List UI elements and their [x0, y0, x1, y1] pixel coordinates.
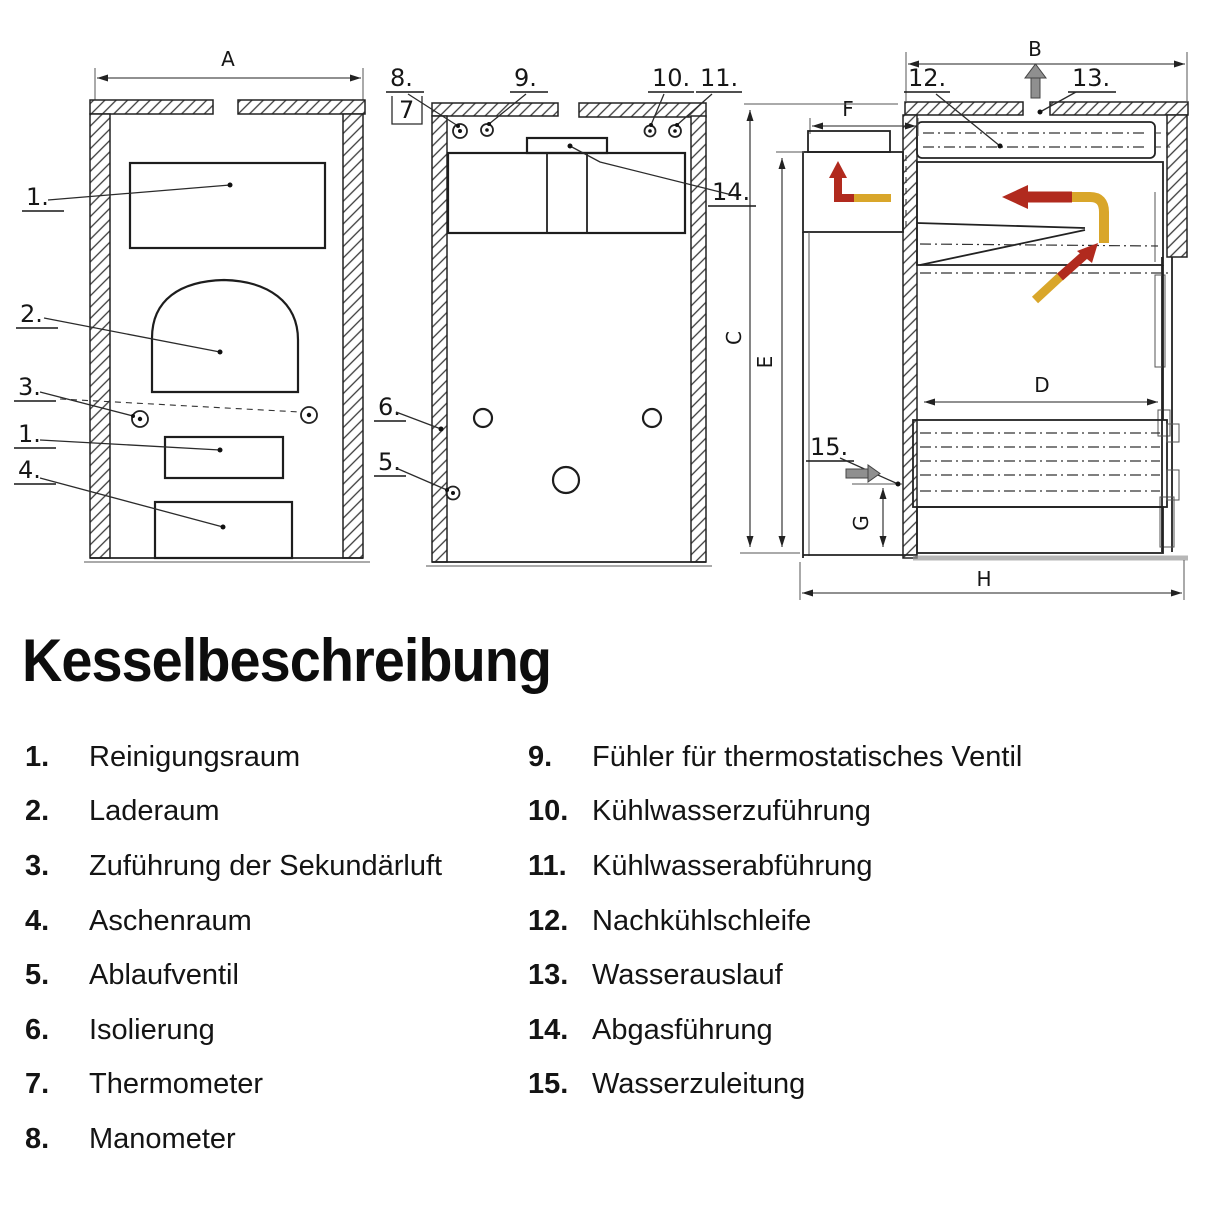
- legend-item-label: Aschenraum: [89, 905, 252, 938]
- rear-flue-up-arrow: [829, 161, 891, 198]
- legend-item: 3. Zuführung der Sekundärluft: [25, 839, 520, 894]
- boiler-technical-drawings: A 1. 2. 3. 1. 4.: [0, 0, 1214, 622]
- legend-item-label: Nachkühlschleife: [592, 905, 811, 938]
- port-circle: [553, 467, 579, 493]
- side-section-view: B F: [722, 37, 1188, 600]
- legend-item-label: Reinigungsraum: [89, 741, 300, 774]
- hatched-wall: [691, 116, 706, 562]
- legend-item-number: 12.: [528, 905, 592, 938]
- legend-item-label: Zuführung der Sekundärluft: [89, 850, 442, 883]
- callout-label-7: 7: [399, 96, 414, 124]
- callout-label-5: 5.: [378, 448, 401, 476]
- legend-item: 7. Thermometer: [25, 1058, 520, 1113]
- hatched-wall: [579, 103, 706, 117]
- legend-item-number: 15.: [528, 1068, 592, 1101]
- hatched-wall: [90, 100, 213, 114]
- legend-item: 5. Ablaufventil: [25, 948, 520, 1003]
- baffle-top: [917, 223, 1085, 228]
- callout-label-4: 4.: [18, 456, 41, 484]
- cleaning-chamber: [130, 163, 325, 248]
- legend-column-right: 9. Fühler für thermostatisches Ventil 10…: [528, 730, 1188, 1112]
- rear-flue-chamber: [803, 152, 903, 232]
- ash-pan-chamber: [917, 507, 1163, 553]
- legend-item-label: Fühler für thermostatisches Ventil: [592, 741, 1022, 774]
- callout-label-13: 13.: [1072, 64, 1110, 92]
- dim-label-f: F: [842, 97, 854, 121]
- callout-label-6: 6.: [378, 393, 401, 421]
- loading-chamber-arch: [152, 280, 298, 392]
- callout-label-3: 3.: [18, 373, 41, 401]
- callout-label-9: 9.: [514, 64, 537, 92]
- middle-section-view: 8. 7 9. 10. 11. 14. 6. 5.: [374, 64, 756, 566]
- hatched-wall: [1167, 115, 1187, 257]
- dim-label-a: A: [221, 47, 235, 71]
- callout-label-1b: 1.: [18, 420, 41, 448]
- hatched-wall: [903, 115, 917, 558]
- hatched-wall: [905, 102, 1023, 115]
- legend-item-label: Kühlwasserabführung: [592, 850, 873, 883]
- port-circle: [643, 409, 661, 427]
- flue-outlet: [527, 138, 607, 153]
- hot-gas-arrow-left: [1002, 185, 1104, 243]
- dim-label-h: H: [976, 567, 991, 591]
- page-title: Kesselbeschreibung: [22, 626, 551, 695]
- ash-chamber: [155, 502, 292, 558]
- dim-label-b: B: [1028, 37, 1042, 61]
- legend-item-number: 1.: [25, 741, 89, 774]
- dim-label-c: C: [722, 331, 746, 345]
- after-cooling-loop: [917, 122, 1155, 158]
- legend-item-label: Isolierung: [89, 1014, 215, 1047]
- legend-item: 14. Abgasführung: [528, 1003, 1188, 1058]
- legend-item-number: 10.: [528, 795, 592, 828]
- legend-item-label: Laderaum: [89, 795, 220, 828]
- legend-item-label: Manometer: [89, 1123, 236, 1156]
- port-circle: [474, 409, 492, 427]
- legend-item: 12. Nachkühlschleife: [528, 894, 1188, 949]
- callout-label-10: 10.: [652, 64, 690, 92]
- legend-item: 6. Isolierung: [25, 1003, 520, 1058]
- hatched-wall: [238, 100, 365, 114]
- upper-duct-box: [448, 153, 685, 233]
- callout-label-15: 15.: [810, 433, 848, 461]
- upper-flue-chamber: [917, 162, 1163, 265]
- callout-label-2: 2.: [20, 300, 43, 328]
- hatched-wall: [90, 114, 110, 558]
- legend-item: 10. Kühlwasserzuführung: [528, 785, 1188, 840]
- legend-item: 15. Wasserzuleitung: [528, 1058, 1188, 1113]
- callout-label-11: 11.: [700, 64, 738, 92]
- legend-item: 4. Aschenraum: [25, 894, 520, 949]
- hatched-wall: [1050, 102, 1188, 115]
- cleaning-chamber-lower: [165, 437, 283, 478]
- legend-item-number: 8.: [25, 1123, 89, 1156]
- legend-item-number: 3.: [25, 850, 89, 883]
- legend-item-label: Kühlwasserzuführung: [592, 795, 871, 828]
- legend-item-number: 11.: [528, 850, 592, 883]
- legend-item-label: Wasserauslauf: [592, 959, 783, 992]
- callout-label-8: 8.: [390, 64, 413, 92]
- rear-top-box: [808, 131, 890, 152]
- baffle-diagonal: [920, 230, 1085, 265]
- legend-item-label: Wasserzuleitung: [592, 1068, 805, 1101]
- legend-item: 11. Kühlwasserabführung: [528, 839, 1188, 894]
- legend-item-number: 4.: [25, 905, 89, 938]
- callout-label-12: 12.: [908, 64, 946, 92]
- legend-item-number: 9.: [528, 741, 592, 774]
- dim-label-g: G: [849, 515, 873, 531]
- water-inlet-arrow: [846, 465, 880, 482]
- legend-item: 9. Fühler für thermostatisches Ventil: [528, 730, 1188, 785]
- legend-item: 8. Manometer: [25, 1112, 520, 1167]
- callout-label-1: 1.: [26, 183, 49, 211]
- legend-column-left: 1. Reinigungsraum 2. Laderaum 3. Zuführu…: [25, 730, 520, 1167]
- legend-item-number: 13.: [528, 959, 592, 992]
- hatched-wall: [432, 116, 447, 562]
- legend-item-label: Ablaufventil: [89, 959, 239, 992]
- front-section-view: A 1. 2. 3. 1. 4.: [14, 47, 370, 562]
- legend-item: 13. Wasserauslauf: [528, 948, 1188, 1003]
- flue-gas-up-arrow: [1025, 64, 1046, 98]
- hatched-wall: [343, 114, 363, 558]
- legend-item-label: Abgasführung: [592, 1014, 773, 1047]
- legend-item-number: 2.: [25, 795, 89, 828]
- hatched-wall: [432, 103, 558, 116]
- dim-label-d: D: [1034, 373, 1049, 397]
- dim-label-e: E: [753, 356, 777, 369]
- legend-item-number: 5.: [25, 959, 89, 992]
- legend-item-number: 6.: [25, 1014, 89, 1047]
- legend-item: 1. Reinigungsraum: [25, 730, 520, 785]
- combustion-gas-diagonal-arrow: [1035, 243, 1098, 300]
- legend-item-label: Thermometer: [89, 1068, 263, 1101]
- legend-item: 2. Laderaum: [25, 785, 520, 840]
- scanned-boiler-sheet: A 1. 2. 3. 1. 4.: [0, 0, 1214, 1214]
- legend-item-number: 14.: [528, 1014, 592, 1047]
- legend-item-number: 7.: [25, 1068, 89, 1101]
